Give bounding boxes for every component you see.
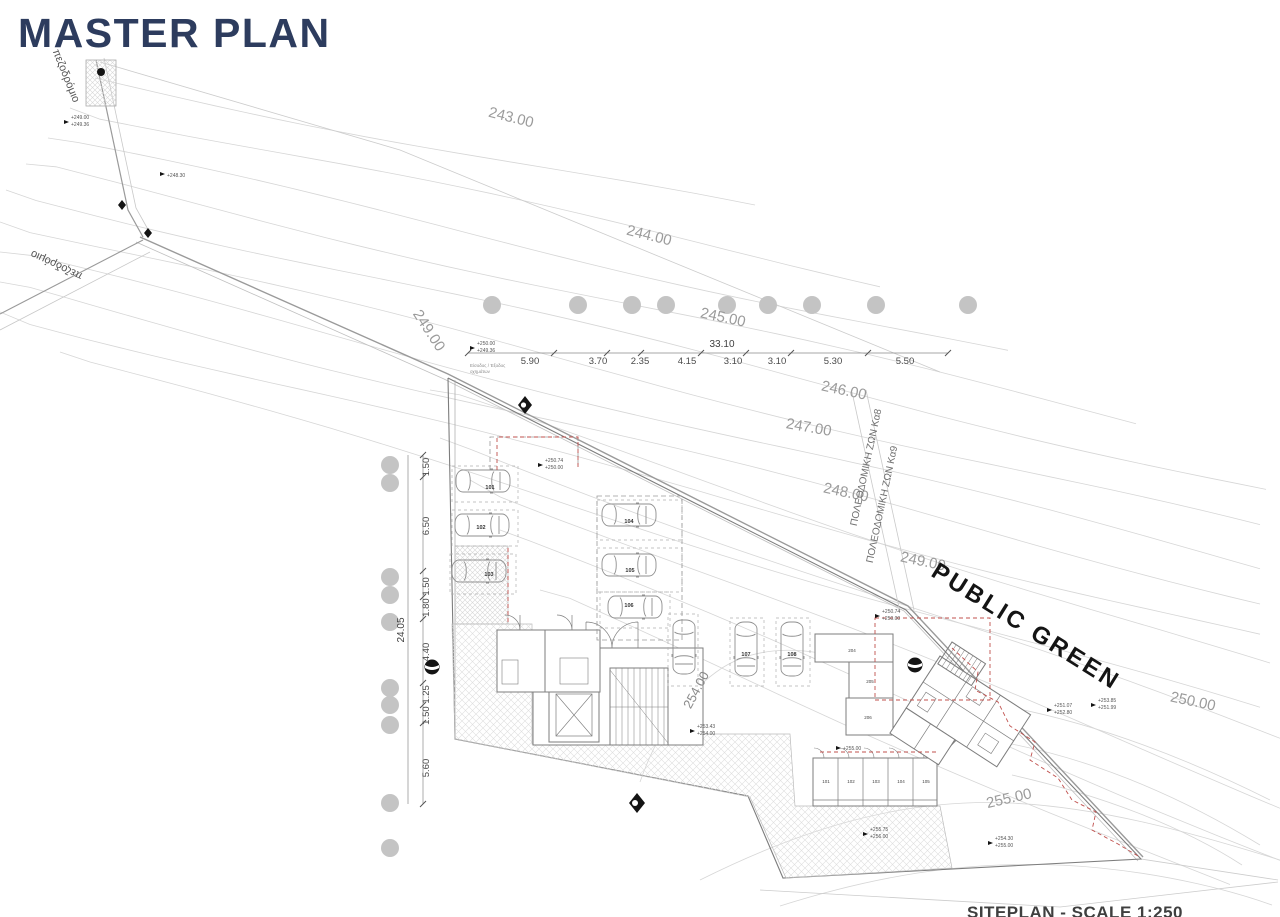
dim-total-left: 24.05 xyxy=(396,617,407,642)
spot-level: +254.00 xyxy=(697,731,715,737)
storage-number: 104 xyxy=(897,779,905,784)
contour-label-247: 247.00 xyxy=(785,415,833,440)
roadside-structure xyxy=(86,60,116,106)
dim-seg: 4.40 xyxy=(421,643,432,662)
spot-level: +253.43 xyxy=(697,724,715,730)
dim-seg: 3.10 xyxy=(724,356,743,367)
storage-number: 103 xyxy=(872,779,880,784)
parking-number: 108 xyxy=(787,652,796,658)
spot-level: +251.07 xyxy=(1054,703,1072,709)
spot-level: +253.85 xyxy=(1098,698,1116,704)
contour-label-249-left: 249.00 xyxy=(409,307,448,355)
dim-seg: 3.10 xyxy=(768,356,787,367)
parking-number: 106 xyxy=(624,603,633,609)
survey-point-icon xyxy=(118,200,126,210)
dim-seg: 1.80 1.50 xyxy=(421,577,432,617)
dim-seg: 4.15 xyxy=(678,356,697,367)
contour-label-243: 243.00 xyxy=(487,104,536,132)
spot-level: +250.74 xyxy=(545,458,563,464)
entrance-note: Είσοδος / Έξοδος xyxy=(470,363,506,368)
diamond-marker-icon xyxy=(518,396,532,414)
dim-total-top: 33.10 xyxy=(709,339,734,350)
page-title: MASTER PLAN xyxy=(18,10,331,57)
spot-level: +249.36 xyxy=(477,348,495,354)
sidewalk-label-left: πεζοδρόμιο xyxy=(29,247,85,282)
parking-number: 104 xyxy=(624,519,634,525)
parking-number: 103 xyxy=(484,572,493,578)
spot-level: +250.00 xyxy=(882,616,900,622)
dim-seg: 1.50 1.25 xyxy=(421,685,432,725)
diamond-marker-icon xyxy=(629,793,645,813)
siteplan-drawing: 243.00 244.00 245.00 246.00 247.00 248.0… xyxy=(0,0,1280,917)
storage-number: 102 xyxy=(847,779,855,784)
dim-seg: 2.35 xyxy=(631,356,650,367)
dim-seg: 3.70 xyxy=(589,356,608,367)
survey-point-icon xyxy=(97,68,105,76)
spot-level: +256.00 xyxy=(870,834,888,840)
room-number: 206 xyxy=(864,715,872,720)
spot-level: +255.00 xyxy=(995,843,1013,849)
contour-label-246: 246.00 xyxy=(820,378,868,404)
dim-seg: 6.50 xyxy=(421,517,432,536)
plan-caption: SITEPLAN - SCALE 1:250 xyxy=(950,903,1200,917)
dim-seg: 5.30 xyxy=(824,356,843,367)
storage-number: 101 xyxy=(822,779,830,784)
storage-number: 105 xyxy=(922,779,930,784)
spot-level: +251.99 xyxy=(1098,705,1116,711)
dim-seg: 5.60 xyxy=(421,759,432,778)
spot-level: +255.00 xyxy=(843,746,861,752)
siteplan-canvas: 243.00 244.00 245.00 246.00 247.00 248.0… xyxy=(0,0,1280,917)
spot-level: +249.36 xyxy=(71,122,89,128)
spot-level: +248.30 xyxy=(167,173,185,179)
parking-number: 101 xyxy=(485,485,494,491)
dim-seg: 1.50 xyxy=(421,458,432,477)
room-number: 204 xyxy=(848,648,856,653)
spot-level: +250.00 xyxy=(545,465,563,471)
parking-number: 107 xyxy=(741,652,750,658)
dim-seg: 5.50 xyxy=(896,356,915,367)
spot-level: +249.00 xyxy=(71,115,89,121)
spot-level: +252.80 xyxy=(1054,710,1072,716)
entrance-note: οχημάτων xyxy=(470,368,491,374)
spot-level: +250.74 xyxy=(882,609,900,615)
contour-label-250: 250.00 xyxy=(1169,689,1217,715)
compass-marker-icon xyxy=(908,658,923,673)
contour-label-245: 245.00 xyxy=(699,305,747,331)
parking-number: 105 xyxy=(625,568,634,574)
room-number: 205 xyxy=(866,679,874,684)
spot-level: +250.00 xyxy=(477,341,495,347)
dim-seg: 5.90 xyxy=(521,356,540,367)
spot-level: +254.30 xyxy=(995,836,1013,842)
parking-number: 102 xyxy=(476,525,485,531)
canopy-dashed-outline xyxy=(490,437,682,640)
spot-level: +255.75 xyxy=(870,827,888,833)
